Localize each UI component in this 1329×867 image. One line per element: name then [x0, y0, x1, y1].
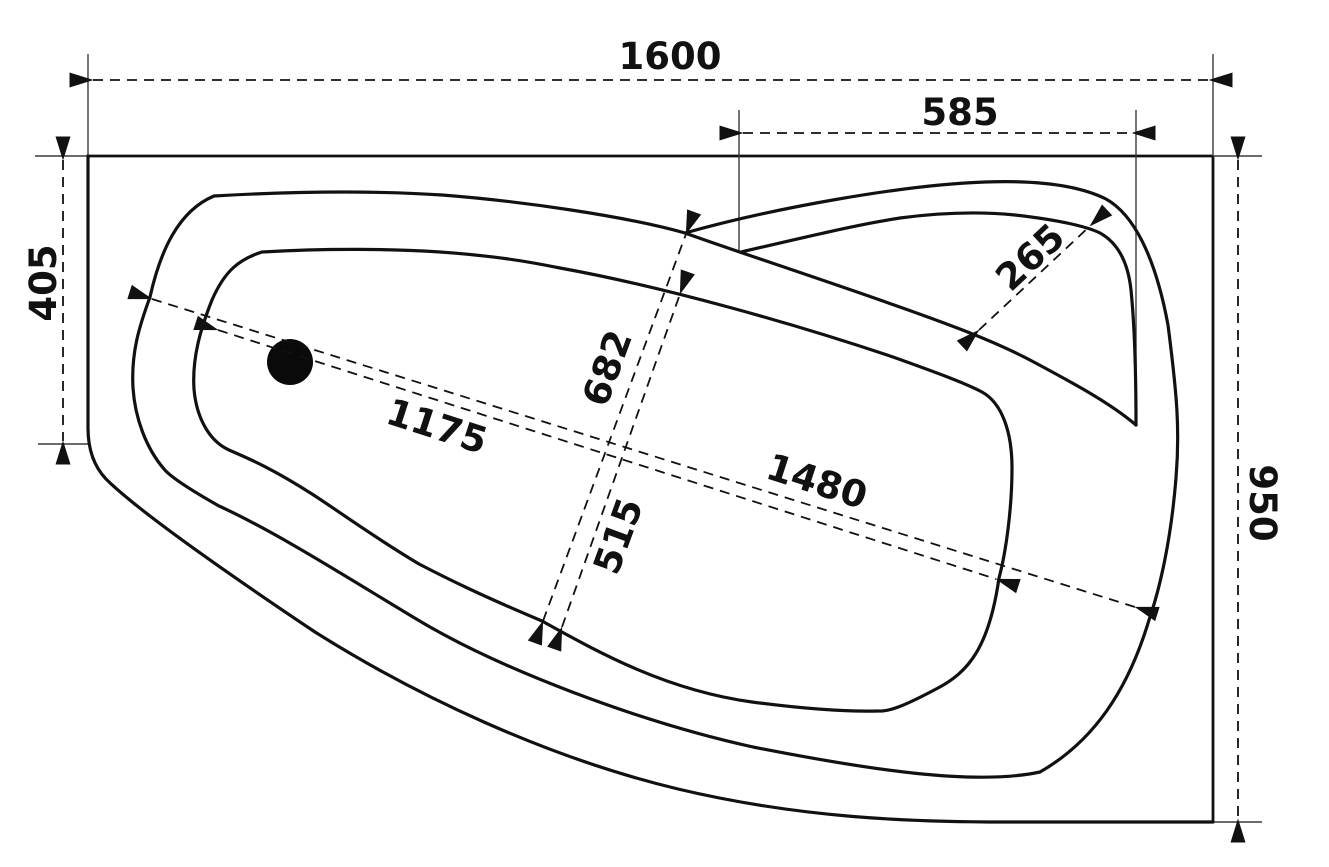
dim-label-515: 515	[585, 493, 652, 580]
dim-label-585: 585	[921, 91, 998, 134]
extension-lines	[35, 54, 1262, 822]
dim-label-405: 405	[22, 244, 65, 321]
dim-label-1480: 1480	[761, 445, 872, 518]
dimension-labels: 1600 585 405 950 682 515 1175 1480 265	[22, 35, 1284, 580]
dim-label-950: 950	[1241, 464, 1284, 541]
drawing-canvas: 1600 585 405 950 682 515 1175 1480 265	[0, 0, 1329, 867]
dim-label-682: 682	[574, 325, 641, 412]
drain-dot	[267, 339, 313, 385]
bathtub-dimension-diagram: 1600 585 405 950 682 515 1175 1480 265	[0, 0, 1329, 867]
dim-label-1175: 1175	[381, 390, 492, 463]
dim-label-1600: 1600	[619, 35, 722, 78]
dimension-lines	[63, 80, 1238, 819]
dim-line-1480	[152, 299, 1135, 607]
tub-shelf-inner-outline	[741, 213, 1136, 425]
dim-label-265: 265	[987, 215, 1073, 299]
tub-divider-curve	[685, 233, 1136, 425]
tub-basin-outline	[194, 249, 1012, 711]
